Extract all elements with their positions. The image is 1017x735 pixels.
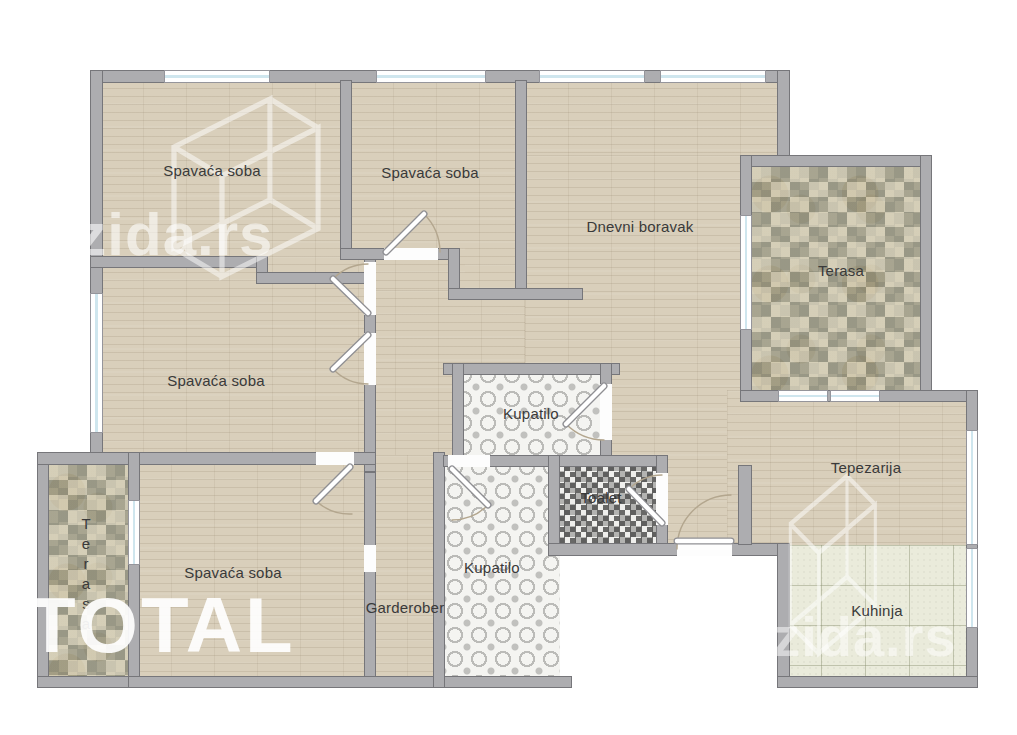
room-label-dining-room: Tepezarija — [831, 459, 901, 476]
room-label-terrace-left: Terasa — [78, 515, 95, 635]
room-label-bedroom-1: Spavaća soba — [163, 162, 260, 179]
watermark-partial-letter — [293, 696, 307, 735]
watermark-partial-letter — [197, 696, 227, 735]
room-label-bathroom-2: Kupatilo — [464, 559, 520, 576]
room-label-wardrobe: Garderober — [366, 599, 445, 616]
room-label-bathroom-1: Kupatilo — [503, 405, 559, 422]
room-label-bedroom-4: Spavaća soba — [184, 564, 281, 581]
room-label-living-room: Dnevni boravak — [586, 218, 693, 235]
room-label-kitchen: Kuhinja — [851, 602, 902, 619]
watermark-partial-letter — [142, 696, 166, 735]
room-label-toilet: Toalet — [580, 489, 621, 506]
floor-plan: Spavaća soba Spavaća soba Dnevni boravak… — [0, 0, 1017, 735]
room-label-bedroom-2: Spavaća soba — [381, 164, 478, 181]
watermark-partial-letter — [100, 696, 134, 735]
watermark-partial-letter — [58, 696, 88, 735]
room-label-bedroom-3: Spavaća soba — [167, 372, 264, 389]
doors-overlay — [0, 0, 1017, 735]
watermark-partial-letter — [260, 696, 277, 735]
room-label-terrace-top: Terasa — [818, 262, 864, 279]
